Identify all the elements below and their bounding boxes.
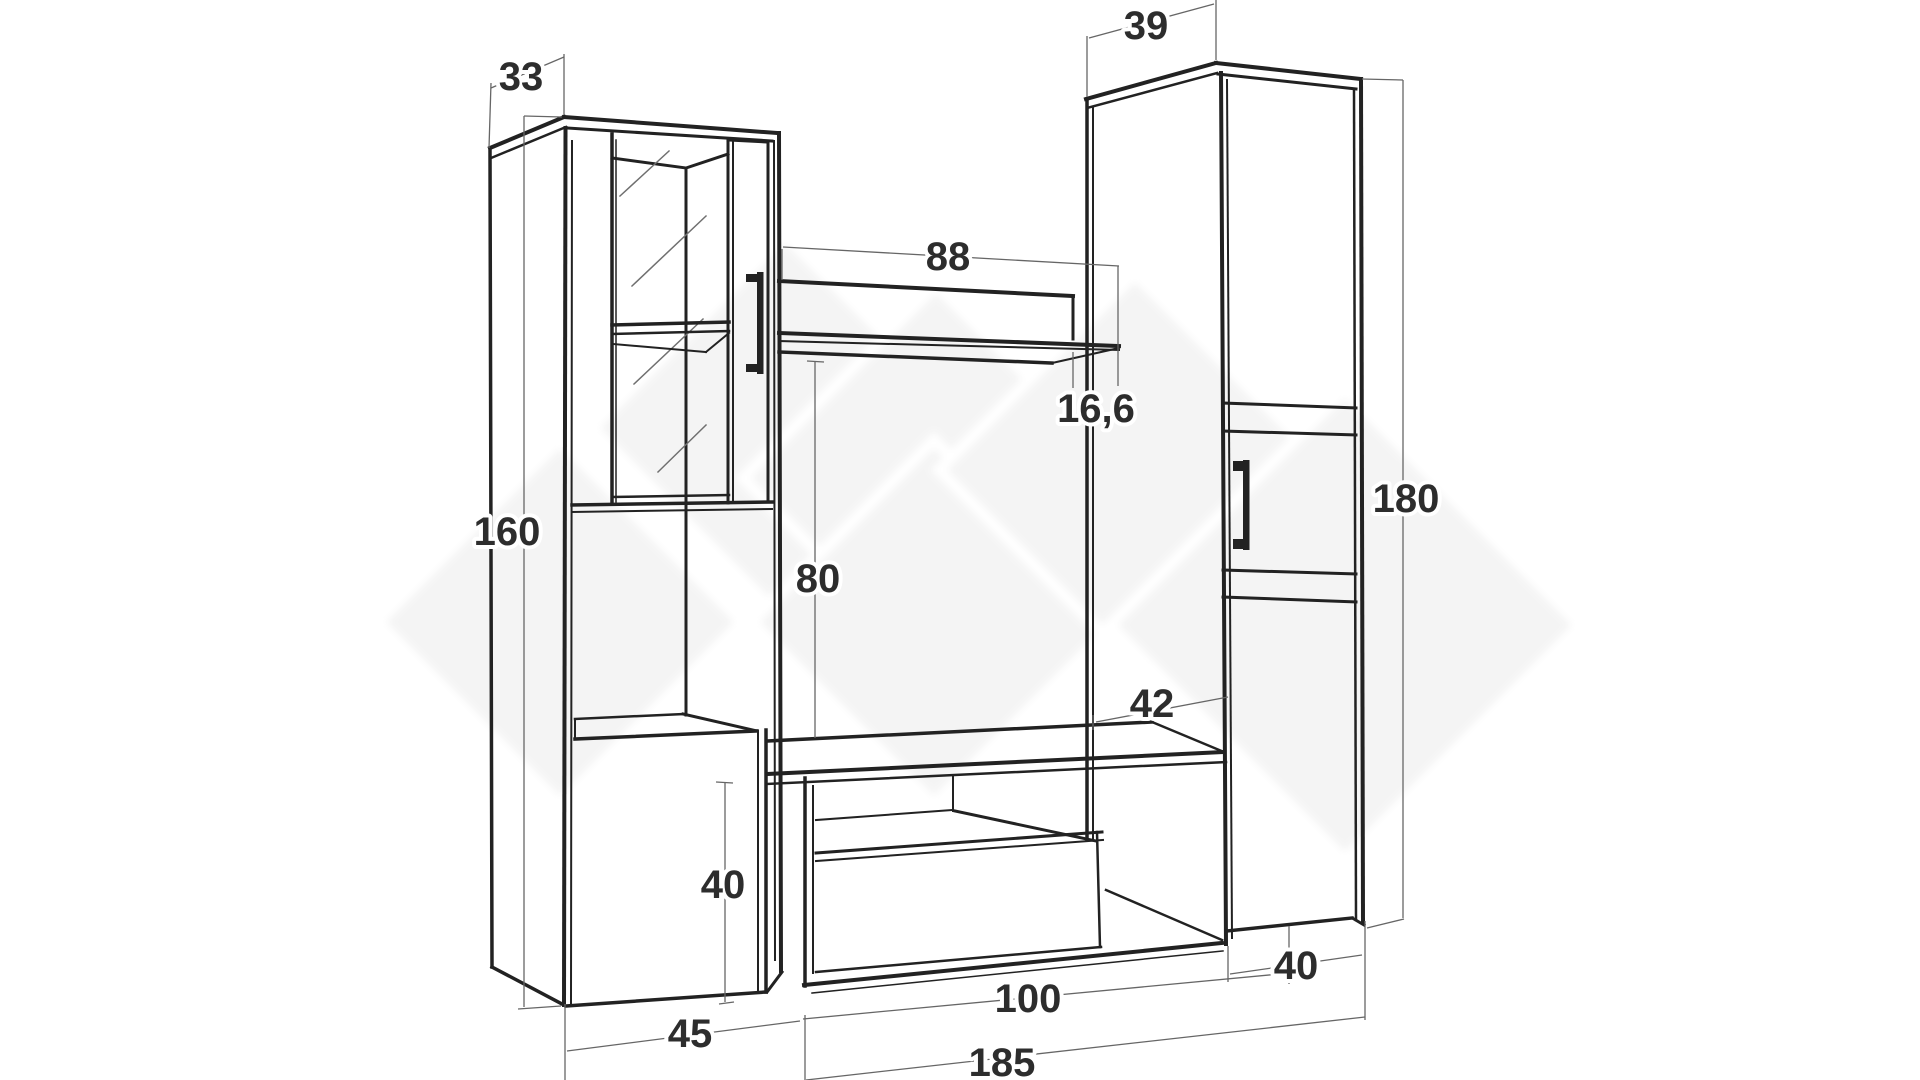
- svg-text:185: 185: [969, 1041, 1036, 1080]
- svg-text:180: 180: [1373, 477, 1440, 521]
- svg-text:40: 40: [1274, 944, 1319, 988]
- svg-text:16,6: 16,6: [1057, 387, 1135, 431]
- svg-text:80: 80: [796, 557, 841, 601]
- svg-text:100: 100: [995, 977, 1062, 1021]
- svg-text:39: 39: [1124, 4, 1169, 48]
- svg-text:40: 40: [701, 863, 746, 907]
- svg-text:88: 88: [926, 235, 971, 279]
- svg-text:33: 33: [499, 55, 544, 99]
- svg-text:42: 42: [1130, 682, 1175, 726]
- svg-text:160: 160: [474, 510, 541, 554]
- svg-text:45: 45: [668, 1012, 713, 1056]
